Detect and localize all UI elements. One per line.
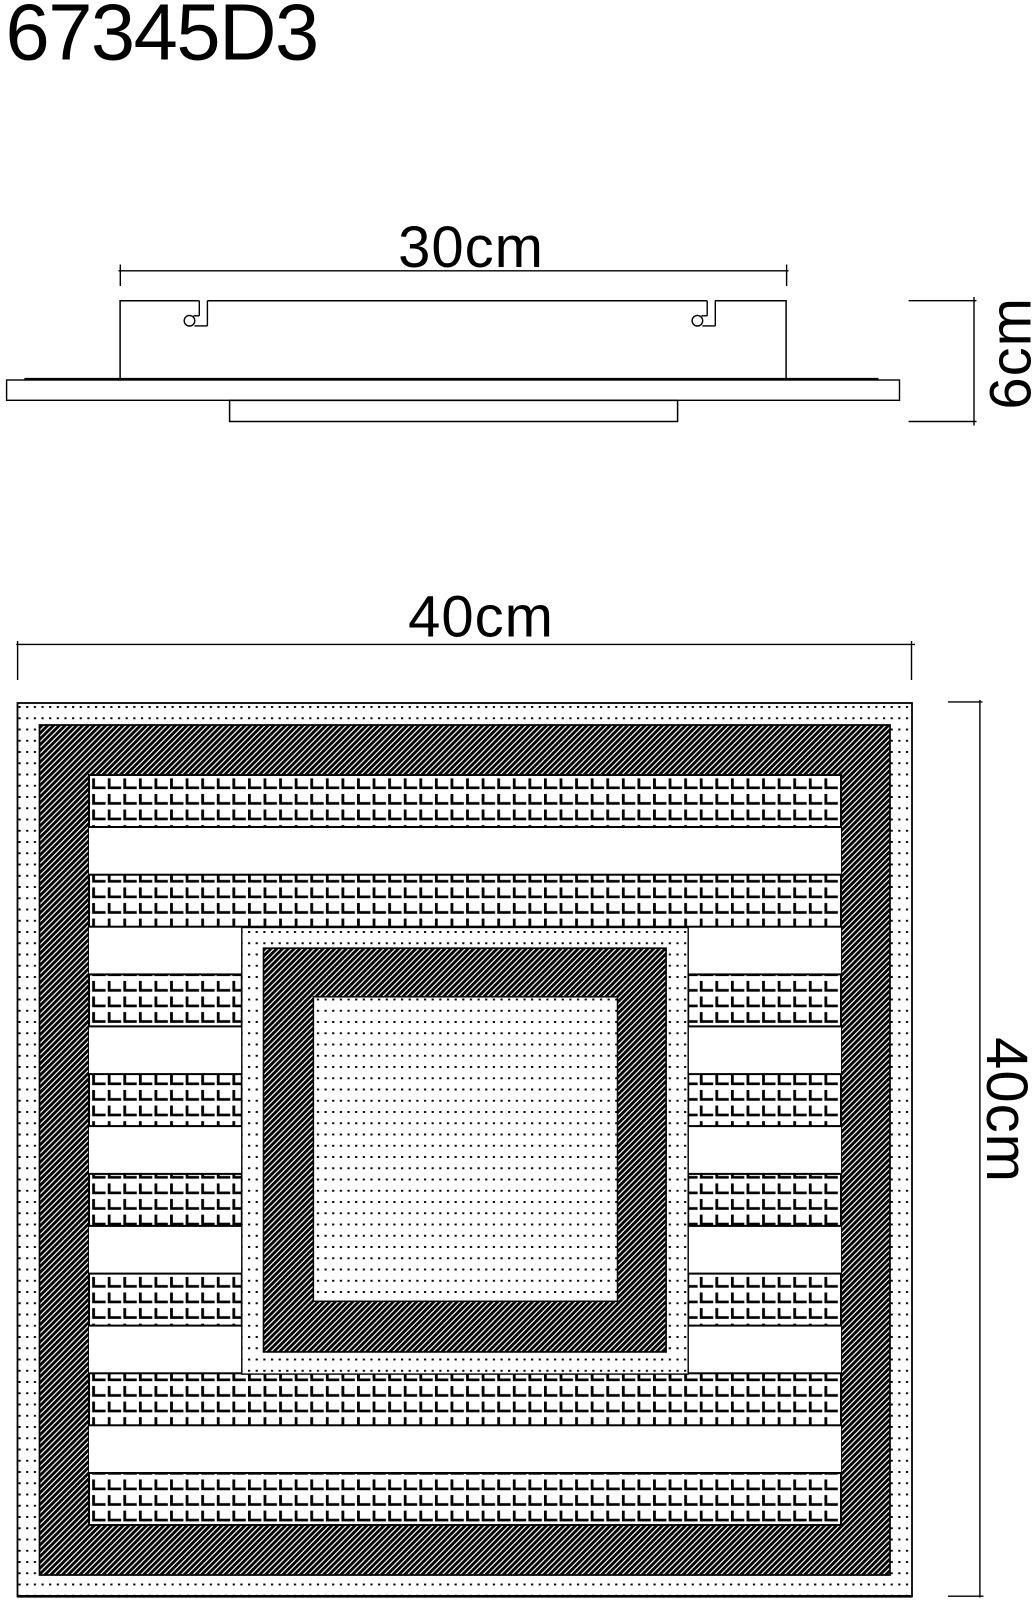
svg-text:40cm: 40cm bbox=[974, 1037, 1034, 1183]
svg-text:40cm: 40cm bbox=[408, 585, 554, 650]
svg-text:67345D3: 67345D3 bbox=[6, 0, 318, 76]
svg-text:6cm: 6cm bbox=[979, 297, 1034, 410]
